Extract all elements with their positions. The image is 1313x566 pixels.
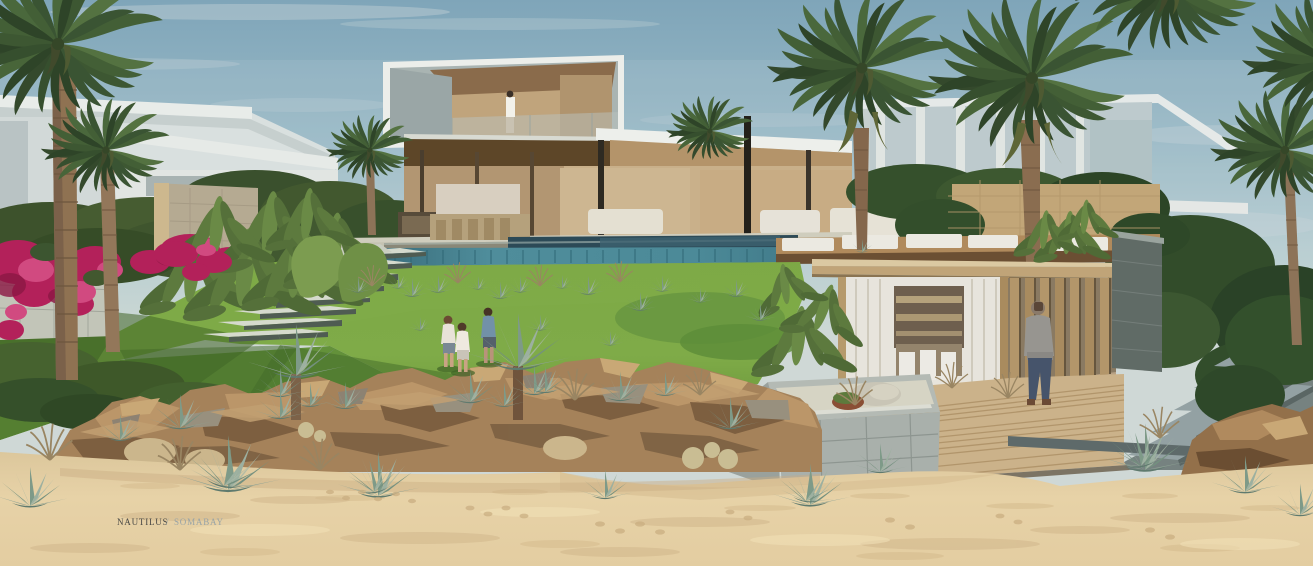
- svg-text:SOMABAY: SOMABAY: [174, 517, 224, 527]
- svg-text:NAUTILUS: NAUTILUS: [117, 517, 168, 527]
